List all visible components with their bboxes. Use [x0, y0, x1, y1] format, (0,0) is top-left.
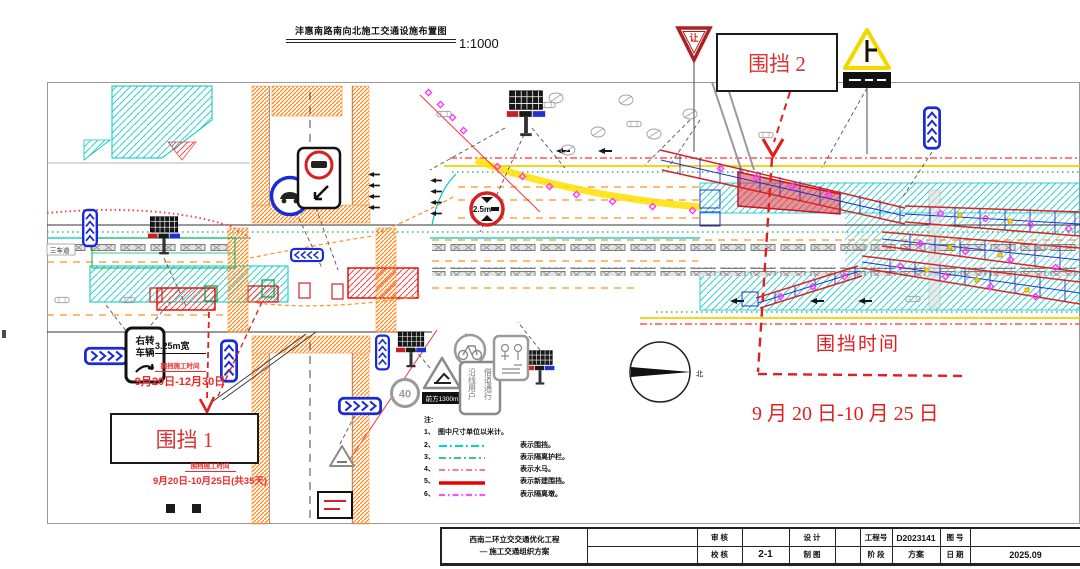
- legend-swatch-enclosure: [438, 442, 486, 450]
- legend-swatch-guardrail: [438, 454, 486, 462]
- draft-label: 制 图: [789, 546, 835, 563]
- enclosure2-callout: 围挡 2: [716, 33, 838, 92]
- chevron-board-right: [924, 108, 939, 149]
- legend-swatch-isolation-block: [438, 491, 486, 499]
- design-label: 设 计: [789, 529, 835, 546]
- right-turn-line1: 右转: [134, 335, 155, 347]
- project-no-label: 工程号: [860, 529, 892, 546]
- chevron-board-west: [83, 210, 97, 246]
- no-entry-panel-sign: [298, 148, 340, 208]
- legend-text-5: 表示新建围挡。: [520, 476, 569, 488]
- stage-label: 阶 段: [860, 546, 892, 563]
- drawing-no-value: [970, 529, 1080, 546]
- worktime1-note: 围挡施工时间 9月20日-12月30日: [128, 355, 232, 389]
- yield-sign-label: 让: [689, 32, 698, 43]
- worktime2-title: 围挡施工时间: [185, 460, 236, 472]
- legend-item-1: 1、 图中尺寸单位以米计。: [424, 427, 569, 439]
- title-underline: [286, 39, 456, 40]
- lane-count-label: 三车道: [47, 244, 75, 255]
- date-label: 日 期: [940, 546, 970, 563]
- worktime1-range: 9月20日-12月30日: [128, 373, 232, 389]
- check-value: 2-1: [742, 546, 789, 563]
- draft-value: [835, 546, 860, 563]
- detour-col1: 沿线用户: [468, 368, 477, 401]
- title-underline-2: [286, 42, 456, 43]
- title-block: 西南二环立交交通优化工程 — 施工交通组织方案 审 核 校 核 2-1 设 计 …: [440, 527, 1080, 566]
- legend-item-4: 4、 表示水马。: [424, 464, 569, 476]
- height-limit-sign: 2.5m: [471, 193, 503, 225]
- legend-item-2: 2、 表示围挡。: [424, 440, 569, 452]
- chevron-board-sw: [85, 348, 126, 364]
- project-name-line2: — 施工交通组织方案: [480, 546, 550, 558]
- lane-width-label: 3.25m宽: [155, 339, 206, 354]
- chevron-board-s: [339, 398, 380, 414]
- pictogram-sign: [494, 336, 528, 380]
- small-notice-sign: [318, 492, 352, 518]
- bicycle-sign: [455, 335, 485, 365]
- detour-col2: 借道通行: [484, 367, 493, 401]
- scale-label: 1:1000: [459, 36, 499, 51]
- check-label: 校 核: [697, 546, 742, 563]
- speed-limit-value: 40: [399, 389, 411, 401]
- enclosure-time-range: 9 月 20 日-10 月 25 日: [752, 397, 939, 426]
- height-limit-value: 2.5m: [473, 205, 491, 214]
- project-no-value: D2023141: [892, 529, 940, 546]
- drawing-title: 沣惠南路南向北施工交通设施布置图: [286, 24, 456, 37]
- project-name-cell: 西南二环立交交通优化工程 — 施工交通组织方案: [442, 529, 587, 563]
- legend-no-5: 5、: [424, 476, 438, 488]
- legend: 注: 1、 图中尺寸单位以米计。 2、 表示围挡。 3、 表示隔离护栏。 4、 …: [424, 415, 569, 501]
- legend-item-5: 5、 表示新建围挡。: [424, 476, 569, 488]
- enclosure-time-title: 围挡时间: [816, 329, 900, 356]
- legend-heading: 注:: [424, 415, 569, 427]
- drawing-no-label: 图 号: [940, 529, 970, 546]
- chevron-board-median: [291, 249, 323, 261]
- legend-item-6: 6、 表示隔离墩。: [424, 489, 569, 501]
- drawing-title-group: 沣惠南路南向北施工交通设施布置图: [286, 24, 456, 43]
- drawing-sheet: 三车道: [0, 0, 1080, 569]
- worktime1-title: 围挡施工时间: [155, 360, 206, 372]
- review-label: 审 核: [697, 529, 742, 546]
- legend-swatch-water-barrier: [438, 466, 486, 474]
- worktime2-note: 围挡施工时间 9月20日-10月25日(共35天): [142, 455, 278, 487]
- review-value: [742, 529, 789, 546]
- legend-no-1: 1、: [424, 427, 438, 439]
- legend-text-3: 表示隔离护栏。: [520, 452, 569, 464]
- legend-text-2: 表示围挡。: [520, 440, 555, 452]
- legend-no-3: 3、: [424, 452, 438, 464]
- legend-swatch-new-enclosure: [438, 479, 486, 487]
- legend-text-1: 图中尺寸单位以米计。: [438, 427, 508, 439]
- worktime2-range: 9月20日-10月25日(共35天): [142, 473, 278, 487]
- legend-item-3: 3、 表示隔离护栏。: [424, 452, 569, 464]
- margin-mark: [2, 330, 6, 338]
- speed-limit-sign: 40: [392, 380, 419, 407]
- north-label: 北: [696, 370, 703, 378]
- legend-text-4: 表示水马。: [520, 464, 555, 476]
- construction-plate-text: 前方1300m: [426, 394, 459, 403]
- project-name-line1: 西南二环立交交通优化工程: [470, 534, 560, 546]
- stage-value: 方案: [892, 546, 940, 563]
- legend-no-2: 2、: [424, 440, 438, 452]
- lane-count-text: 三车道: [50, 246, 70, 255]
- legend-no-4: 4、: [424, 464, 438, 476]
- legend-text-6: 表示隔离墩。: [520, 489, 562, 501]
- legend-no-6: 6、: [424, 489, 438, 501]
- chevron-board-south2: [376, 336, 389, 370]
- date-value: 2025.09: [970, 546, 1080, 563]
- design-value: [835, 529, 860, 546]
